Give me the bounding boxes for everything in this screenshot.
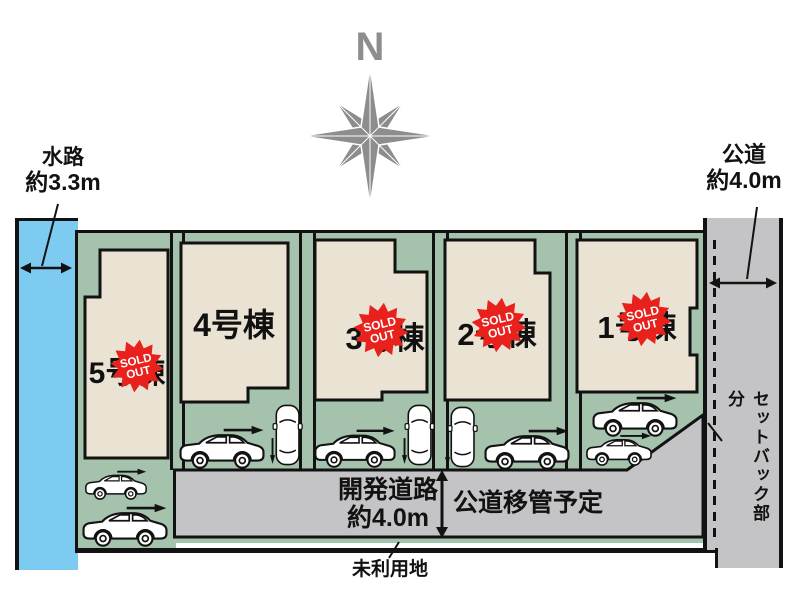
public-road-name: 公道 <box>694 143 794 168</box>
road-transfer-label: 公道移管予定 <box>453 489 603 517</box>
public-road-width-arrow <box>707 275 779 291</box>
sold-out-badge: SOLD OUT <box>468 294 530 356</box>
dev-road-width-arrow <box>433 470 451 538</box>
unused-land-label: 未利用地 <box>352 559 428 580</box>
dev-road-label: 開発道路 約4.0m <box>328 476 448 532</box>
car-icon <box>311 426 399 468</box>
sold-out-badge: SOLD OUT <box>613 288 675 350</box>
sold-out-badge: SOLD OUT <box>350 299 412 361</box>
car-icon <box>445 404 479 470</box>
car-icon <box>79 503 171 547</box>
dev-road-name: 開発道路 <box>328 476 448 504</box>
car-icon <box>84 466 148 502</box>
car-icon <box>584 432 654 466</box>
waterway-label: 水路 約3.3m <box>13 146 113 195</box>
waterway-name: 水路 <box>13 146 113 170</box>
car-icon <box>589 393 681 437</box>
car-icon <box>482 426 572 470</box>
car-icon <box>270 401 304 469</box>
public-road-leader-line <box>744 205 760 281</box>
dev-road-size: 約4.0m <box>328 504 448 532</box>
public-road-size: 約4.0m <box>694 168 794 194</box>
waterway-leader-line <box>38 202 62 268</box>
public-road-label: 公道 約4.0m <box>694 143 794 193</box>
waterway-size: 約3.3m <box>13 170 113 196</box>
car-icon <box>402 402 436 468</box>
compass-rose: N <box>300 14 440 208</box>
unused-land-leader-line <box>386 540 402 560</box>
compass-north-label: N <box>356 25 385 69</box>
waterway-width-arrow <box>18 260 74 276</box>
setback-label: セットバック部分 <box>722 390 772 530</box>
lot-label-4: 4号棟 <box>184 300 284 346</box>
sold-out-badge: SOLD OUT <box>107 336 167 396</box>
site-plan: 5号棟 4号棟 3号棟 2号棟 1号棟 SOLD OUT SOLD OUT SO… <box>0 0 800 600</box>
car-icon <box>175 425 269 469</box>
